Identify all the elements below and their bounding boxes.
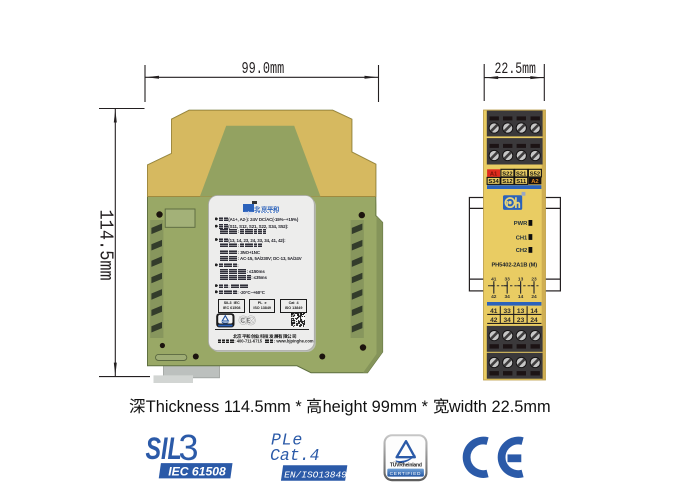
svg-text:S34: S34: [488, 179, 499, 185]
svg-text:22.5mm: 22.5mm: [495, 60, 536, 78]
svg-text:Cat.4: Cat.4: [270, 446, 320, 465]
svg-text:14: 14: [530, 308, 538, 315]
svg-text:PWR: PWR: [514, 221, 528, 227]
svg-text:42: 42: [490, 317, 498, 324]
svg-text:23: 23: [517, 317, 525, 324]
svg-text:CH1: CH1: [516, 235, 528, 241]
svg-text:S12: S12: [502, 179, 512, 185]
svg-text:SIL: SIL: [146, 431, 182, 466]
svg-text:C E: C E: [240, 318, 250, 324]
svg-text:A1: A1: [490, 171, 498, 177]
svg-text:34: 34: [505, 294, 511, 300]
svg-text:41: 41: [490, 308, 498, 315]
svg-text:PH5402-2A1B (M): PH5402-2A1B (M): [491, 262, 537, 268]
svg-text:EN/ISO13849: EN/ISO13849: [284, 469, 347, 480]
svg-text:42: 42: [491, 294, 497, 300]
svg-text:24: 24: [530, 317, 538, 324]
svg-text:CERTIFIED: CERTIFIED: [390, 471, 422, 477]
svg-text:S11: S11: [516, 179, 527, 185]
svg-text:99.0mm: 99.0mm: [242, 60, 285, 78]
svg-text:A2: A2: [531, 179, 538, 185]
svg-text:IEC 61508: IEC 61508: [168, 465, 226, 479]
svg-text:3: 3: [179, 427, 199, 468]
svg-text:S21: S21: [516, 171, 527, 177]
svg-text:13: 13: [517, 308, 525, 315]
svg-text:14: 14: [518, 294, 524, 300]
svg-text:33: 33: [504, 308, 512, 315]
svg-text:24: 24: [531, 294, 537, 300]
svg-text:114.5mm: 114.5mm: [94, 210, 115, 281]
svg-text:34: 34: [504, 317, 512, 324]
svg-text:TÜVRheinland: TÜVRheinland: [390, 462, 422, 469]
svg-text:CH2: CH2: [516, 248, 528, 254]
svg-text:S52: S52: [530, 171, 540, 177]
svg-text:S22: S22: [502, 171, 512, 177]
